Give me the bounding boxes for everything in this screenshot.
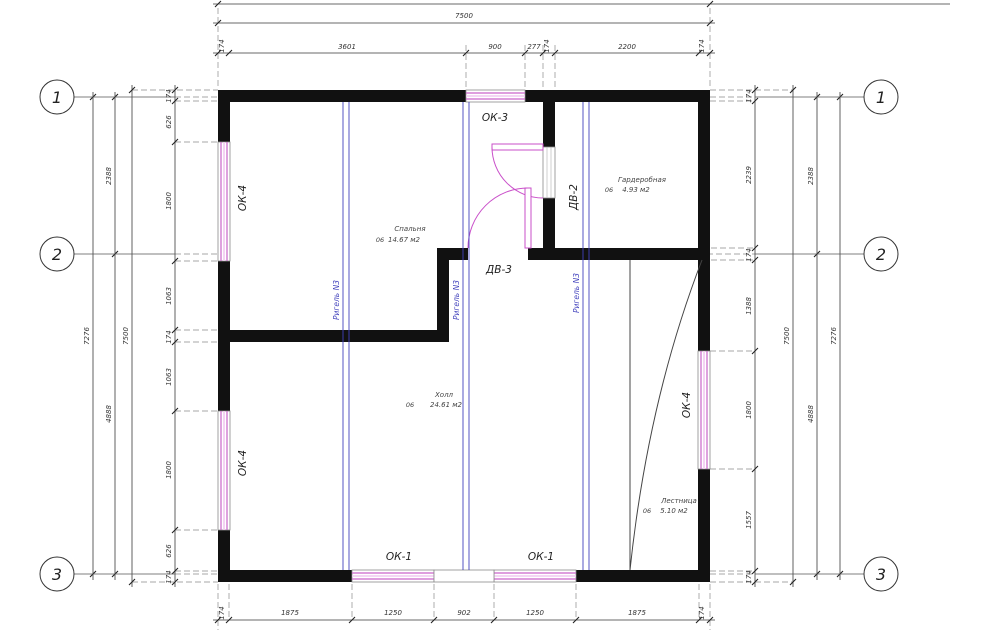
doors xyxy=(468,144,555,248)
room-num-bedroom: 06 xyxy=(376,236,384,244)
dim-label: 1250 xyxy=(526,609,544,617)
dim-label: 174 xyxy=(698,606,706,619)
window-ok1-bottom-left xyxy=(352,570,434,582)
dim-text-right: 174 2239 174 1388 1800 1557 174 7500 238… xyxy=(745,89,838,583)
window-label-ok3: ОК-3 xyxy=(482,112,508,124)
floor-plan-page: 1 2 3 1 2 3 xyxy=(0,0,1000,639)
window-ok3-top xyxy=(466,90,525,102)
window-label-ok1-left: ОК-1 xyxy=(386,551,412,563)
room-labels: Спальня 14.67 м2 06 Гардеробная 4.93 м2 … xyxy=(376,176,697,515)
axis-label: 3 xyxy=(52,565,62,584)
dim-label: 4888 xyxy=(807,405,815,423)
dim-label: 1800 xyxy=(745,401,753,419)
room-num-hall: 06 xyxy=(406,401,414,409)
dim-label: 1557 xyxy=(745,511,753,529)
dim-label: 7276 xyxy=(83,327,91,345)
room-name-wardrobe: Гардеробная xyxy=(618,176,666,184)
dim-label: 277 xyxy=(527,43,541,51)
bottom-wall-pier xyxy=(434,570,494,582)
window-label-ok4-left-top: ОК-4 xyxy=(237,185,249,211)
dim-label: 2388 xyxy=(807,167,815,185)
window-label-ok1-right: ОК-1 xyxy=(528,551,554,563)
dim-label: 1800 xyxy=(165,192,173,210)
dim-text-left: 7276 2388 4888 7500 174 626 1800 1063 17… xyxy=(83,89,173,583)
window-label-ok4-right: ОК-4 xyxy=(681,392,693,418)
dim-overall-top: 7500 xyxy=(455,12,473,20)
axis-label: 3 xyxy=(876,565,886,584)
dim-text-top: 7500 174 3601 900 277 174 2200 174 xyxy=(218,12,706,53)
dim-label: 626 xyxy=(165,544,173,558)
window-label-ok4-left-bottom: ОК-4 xyxy=(237,450,249,476)
room-name-bedroom: Спальня xyxy=(394,225,425,233)
dim-label: 7500 xyxy=(783,327,791,345)
beam-label: Ригель N3 xyxy=(332,280,341,320)
axis-label: 2 xyxy=(52,245,62,264)
room-area-wardrobe: 4.93 м2 xyxy=(622,186,650,194)
floor-plan-canvas: 1 2 3 1 2 3 xyxy=(0,0,1000,639)
dim-label: 174 xyxy=(218,39,226,52)
room-name-stairs: Лестница xyxy=(660,497,697,505)
walls xyxy=(218,90,710,582)
axis-label: 1 xyxy=(52,88,62,107)
dim-label: 1800 xyxy=(165,461,173,479)
dim-label: 174 xyxy=(165,570,173,583)
axis-label: 2 xyxy=(876,245,886,264)
dim-label: 2239 xyxy=(745,166,753,184)
dim-label: 1250 xyxy=(384,609,402,617)
dim-label: 3601 xyxy=(338,43,356,51)
dim-label: 7500 xyxy=(122,327,130,345)
dim-label: 174 xyxy=(165,330,173,343)
room-name-hall: Холл xyxy=(434,391,454,399)
room-area-bedroom: 14.67 м2 xyxy=(388,236,421,244)
dim-label: 174 xyxy=(218,606,226,619)
axis-label: 1 xyxy=(876,88,886,107)
dim-text-bottom: 174 1875 1250 902 1250 1875 174 xyxy=(218,606,706,619)
dim-label: 174 xyxy=(745,248,753,261)
room-num-stairs: 06 xyxy=(643,507,651,515)
room-area-stairs: 5.10 м2 xyxy=(660,507,688,515)
dim-label: 900 xyxy=(488,43,502,51)
dim-label: 174 xyxy=(745,570,753,583)
dim-label: 902 xyxy=(457,609,471,617)
window-ok4-left-bottom xyxy=(218,411,230,530)
window-ok4-right xyxy=(698,351,710,469)
dim-label: 1063 xyxy=(165,368,173,386)
door-dv3 xyxy=(468,188,531,248)
room-area-hall: 24.61 м2 xyxy=(430,401,463,409)
beam-label: Ригель N3 xyxy=(452,280,461,320)
dim-label: 7276 xyxy=(830,327,838,345)
door-label-dv2: ДВ-2 xyxy=(568,184,580,211)
dim-label: 626 xyxy=(165,115,173,129)
dim-label: 174 xyxy=(745,89,753,102)
dim-label: 174 xyxy=(698,39,706,52)
window-ok1-bottom-right xyxy=(494,570,576,582)
beam-label: Ригель N3 xyxy=(572,273,581,313)
room-num-wardrobe: 06 xyxy=(605,186,613,194)
door-label-dv3: ДВ-3 xyxy=(485,264,512,276)
dim-label: 4888 xyxy=(105,405,113,423)
dim-label: 2388 xyxy=(105,167,113,185)
dim-label: 1388 xyxy=(745,297,753,315)
dim-label: 2200 xyxy=(618,43,636,51)
dim-label: 174 xyxy=(543,39,551,52)
dim-label: 1875 xyxy=(281,609,299,617)
dim-label: 1875 xyxy=(628,609,646,617)
window-ok4-left-top xyxy=(218,142,230,261)
dim-label: 174 xyxy=(165,89,173,102)
door-dv2 xyxy=(492,144,555,198)
dim-label: 1063 xyxy=(165,287,173,305)
